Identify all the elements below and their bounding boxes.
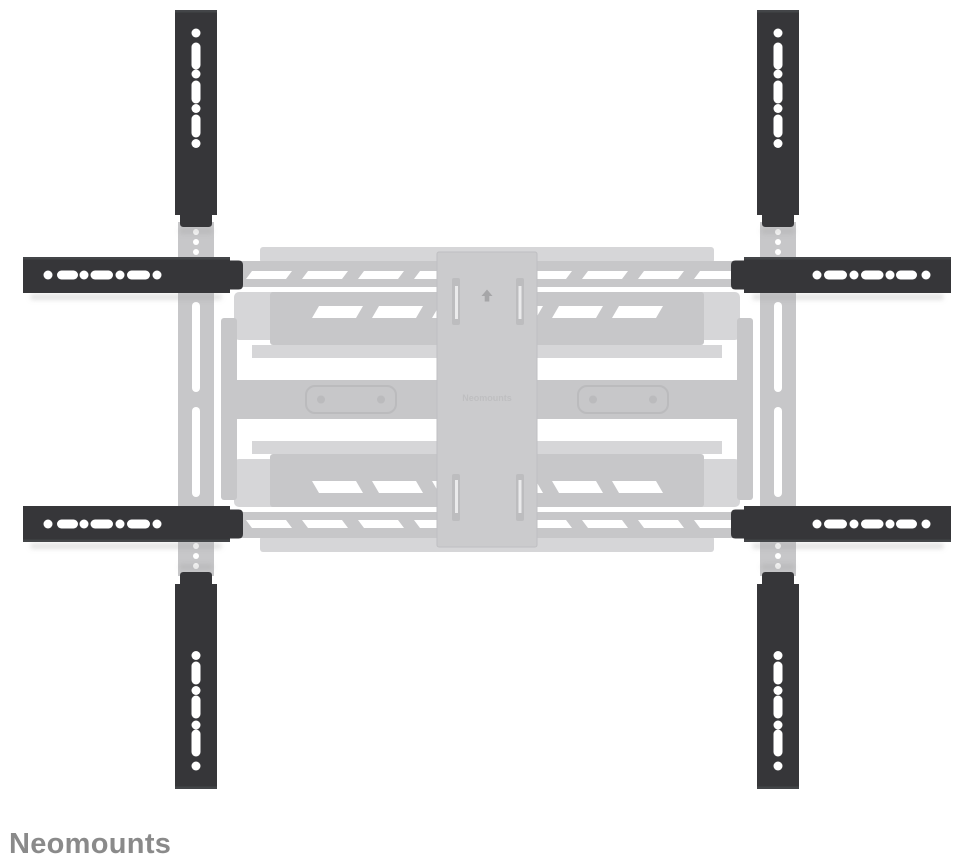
extension-strip-vertical-top-right: [757, 10, 799, 227]
extension-strip-horizontal-right-top: [731, 257, 951, 293]
extension-strip-horizontal-left-bottom: [23, 506, 243, 542]
extension-strip-vertical-bottom-left: [175, 572, 217, 789]
extension-strip-vertical-bottom-right: [757, 572, 799, 789]
extension-strip-horizontal-right-bottom: [731, 506, 951, 542]
extension-strip-horizontal-left-top: [23, 257, 243, 293]
ghost-center-plate: Neomounts: [437, 252, 537, 547]
extension-strip-vertical-top-left: [175, 10, 217, 227]
brand-wordmark: Neomounts: [9, 829, 171, 861]
mount-illustration: Neomounts: [0, 0, 960, 865]
product-image-canvas: Neomounts Neomounts: [0, 0, 960, 865]
plate-watermark: Neomounts: [462, 393, 512, 403]
ghost-wall-mount: Neomounts: [178, 222, 796, 576]
